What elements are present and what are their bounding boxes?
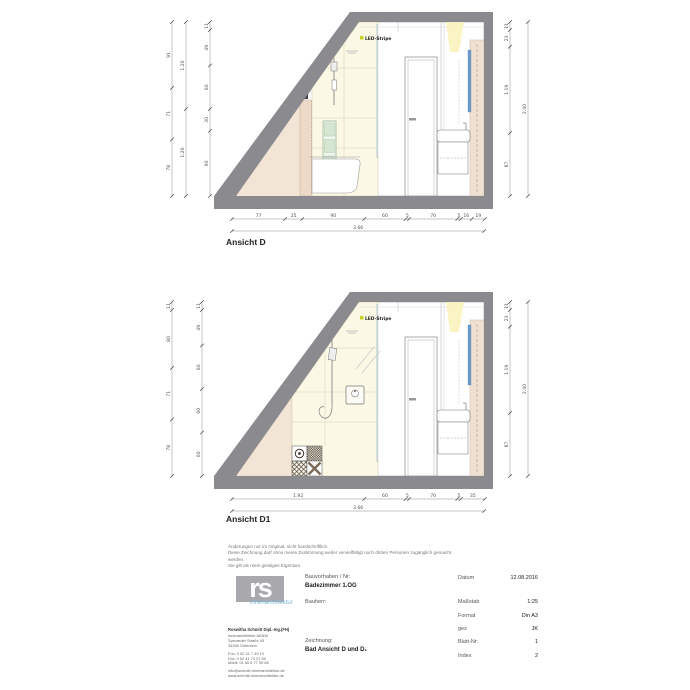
svg-text:87: 87 [504, 441, 510, 447]
door-handle-icon [409, 398, 416, 401]
led-dot-icon [360, 316, 364, 320]
meta-label: Datum [458, 575, 474, 581]
svg-text:23: 23 [504, 35, 510, 41]
meta-value: 1 [535, 639, 538, 645]
svg-text:3.66: 3.66 [353, 505, 363, 511]
ansicht-d: LED-Stripe 7725906057051619 3.6 [166, 12, 530, 233]
svg-text:19: 19 [475, 213, 481, 219]
mirror-strip [468, 325, 471, 385]
svg-text:60: 60 [196, 408, 202, 414]
floor-slab [214, 476, 493, 489]
svg-text:5: 5 [458, 493, 461, 499]
door-handle-icon [409, 118, 416, 121]
svg-text:2.40: 2.40 [522, 104, 528, 114]
svg-text:49: 49 [204, 45, 210, 51]
meta-row-gez: gez JK [458, 626, 538, 632]
dim-chain-left-outer: 11807178 [166, 300, 174, 478]
meta-value: 1:25 [527, 599, 538, 605]
svg-text:1.19: 1.19 [504, 365, 510, 375]
dim-chain-right-total: 2.40 [522, 300, 530, 478]
bauherr-label: Bauherr: [305, 599, 326, 605]
svg-text:35: 35 [470, 493, 476, 499]
svg-text:77: 77 [256, 213, 262, 219]
ansicht-d1-label: Ansicht D1 [226, 514, 270, 524]
meta-label: Index [458, 653, 471, 659]
dim-chain-right-inner: 11231.1987 [504, 300, 512, 478]
svg-text:1.92: 1.92 [293, 493, 303, 499]
meta-label: gez [458, 626, 467, 632]
svg-text:71: 71 [166, 391, 172, 397]
decor-tiles [292, 446, 322, 476]
svg-text:30: 30 [204, 117, 210, 123]
bauvorhaben-label: Bauvorhaben / Nr: [305, 574, 350, 580]
right-wall [484, 292, 493, 489]
right-wall [484, 12, 493, 209]
meta-label: Blatt-Nr: [458, 639, 478, 645]
svg-text:1.19: 1.19 [504, 85, 510, 95]
dim-chain-bottom-total: 3.66 [230, 225, 486, 233]
architect-info: Roswitha Schmitt Dipl.-Ing.(FH) Innenarc… [228, 628, 308, 679]
zeichnung-label: Zeichnung: [305, 638, 333, 644]
svg-text:70: 70 [430, 493, 436, 499]
ceiling-band [350, 12, 493, 22]
svg-text:71: 71 [166, 111, 172, 117]
dim-chain-left-outer: 917178 [166, 20, 174, 198]
meta-value: JK [532, 626, 538, 632]
bauvorhaben-value: Badezimmer 1.OG [305, 583, 357, 589]
led-stripe-label: LED-Stripe [365, 316, 391, 322]
svg-text:80: 80 [166, 336, 172, 342]
svg-text:11: 11 [196, 303, 202, 309]
svg-text:60: 60 [204, 84, 210, 90]
meta-row-blatt: Blatt-Nr: 1 [458, 639, 538, 645]
logo-subtitle: innenarchitektur [250, 600, 293, 606]
ceiling-band [350, 292, 493, 302]
svg-text:23: 23 [504, 315, 510, 321]
copyright-notes: Änderungen nur im Original, nicht handsc… [228, 544, 558, 570]
side-panel [470, 40, 484, 196]
thermostat [346, 386, 364, 404]
dim-chain-bottom: 1.9260570535 [230, 493, 486, 501]
led-dot-icon [360, 36, 364, 40]
door [405, 57, 437, 196]
svg-text:1.20: 1.20 [180, 147, 186, 157]
svg-text:11: 11 [204, 23, 210, 29]
svg-text:60: 60 [382, 493, 388, 499]
architect-web-line: www.schmitt-innenarchitektur.de [228, 674, 308, 679]
svg-text:5: 5 [458, 213, 461, 219]
meta-row-massstab: Maßstab 1:25 [458, 599, 538, 605]
meta-value: 12.08.2016 [510, 575, 538, 581]
svg-text:11: 11 [166, 303, 172, 309]
svg-text:90: 90 [204, 160, 210, 166]
dim-chain-right-total: 2.40 [522, 20, 530, 198]
dim-chain-right-inner: 11231.1987 [504, 20, 512, 198]
svg-text:3.66: 3.66 [353, 225, 363, 231]
architect-address-line: 33335 Gütersloh [228, 644, 308, 649]
mirror-strip [468, 50, 471, 112]
svg-text:5: 5 [406, 213, 409, 219]
floor-slab [214, 196, 493, 209]
svg-text:16: 16 [463, 213, 469, 219]
dim-chain-left-mid: 1.201.20 [180, 20, 188, 198]
svg-text:11: 11 [504, 303, 510, 309]
dim-chain-left-inner: 1149603090 [204, 20, 212, 198]
elevation-drawings: LED-Stripe 7725906057051619 3.6 [0, 0, 690, 540]
svg-text:60: 60 [196, 451, 202, 457]
svg-text:5: 5 [406, 493, 409, 499]
vanity-cabinet [438, 422, 468, 454]
meta-value: Din A3 [522, 613, 538, 619]
vanity-cabinet [438, 142, 468, 174]
meta-value: 2 [535, 653, 538, 659]
svg-text:11: 11 [504, 23, 510, 29]
ansicht-d-label: Ansicht D [226, 237, 266, 247]
meta-row-format: Format Din A3 [458, 613, 538, 619]
meta-label: Format [458, 613, 475, 619]
dim-chain-bottom: 7725906057051619 [230, 213, 486, 221]
svg-text:87: 87 [504, 161, 510, 167]
zeichnung-value: Bad Ansicht D und D₁ [305, 647, 367, 653]
svg-text:1.20: 1.20 [180, 60, 186, 70]
side-panel [470, 320, 484, 476]
note-line: Sie gilt als mein geistiges Eigentum. [228, 563, 558, 569]
drawing-sheet: LED-Stripe 7725906057051619 3.6 [0, 0, 690, 690]
ansicht-d1: LED-Stripe 1.9260570535 3.66 [166, 292, 530, 513]
led-stripe-label: LED-Stripe [365, 36, 391, 42]
svg-text:25: 25 [291, 213, 297, 219]
svg-text:2.40: 2.40 [522, 384, 528, 394]
svg-text:70: 70 [430, 213, 436, 219]
bathtub [310, 157, 360, 193]
meta-label: Maßstab [458, 599, 479, 605]
logo: rs [236, 576, 284, 602]
svg-text:60: 60 [382, 213, 388, 219]
svg-text:49: 49 [196, 325, 202, 331]
svg-text:90: 90 [330, 213, 336, 219]
svg-text:91: 91 [166, 52, 172, 58]
dim-chain-left-inner: 1149606060 [196, 300, 204, 478]
half-wall [300, 100, 312, 196]
dim-chain-bottom-total: 3.66 [230, 505, 486, 513]
door [405, 337, 437, 476]
svg-text:60: 60 [196, 364, 202, 370]
svg-text:78: 78 [166, 165, 172, 171]
architect-contact-line: Mobil: 01 60 6 77 09 68 [228, 661, 308, 666]
meta-row-datum: Datum 12.08.2016 [458, 575, 538, 581]
meta-row-index: Index 2 [458, 653, 538, 659]
svg-text:78: 78 [166, 445, 172, 451]
